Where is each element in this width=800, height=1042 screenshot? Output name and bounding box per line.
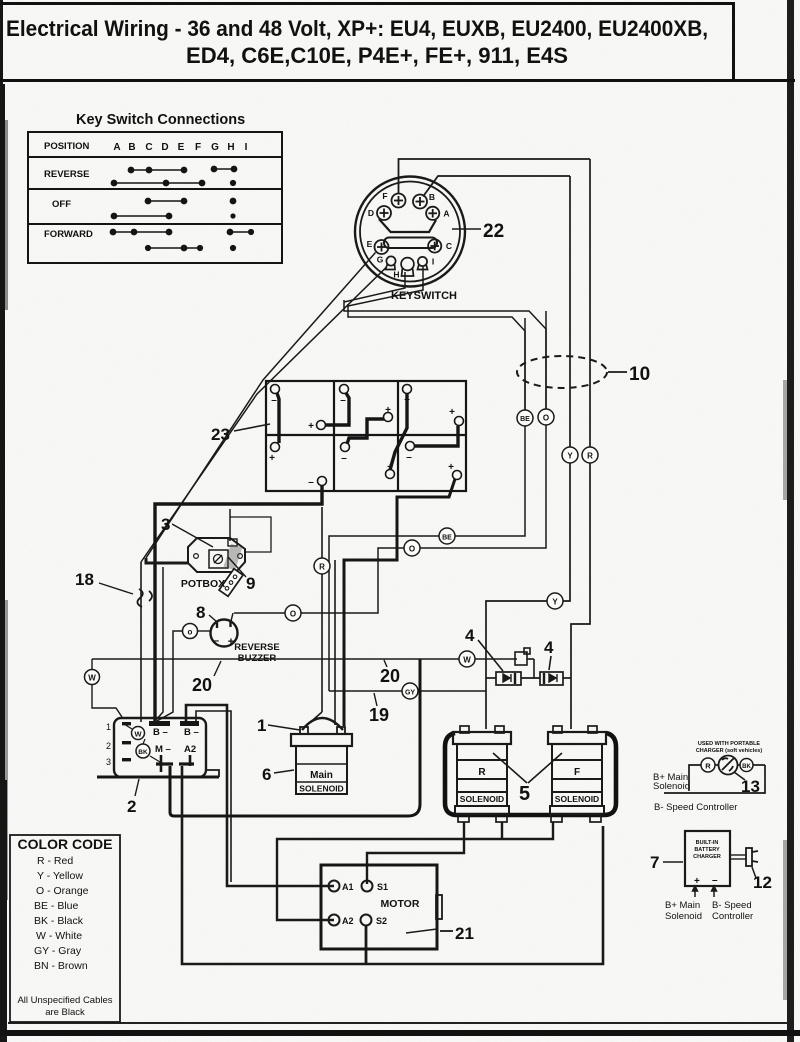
svg-text:C: C: [446, 241, 452, 251]
svg-text:B- Speed: B- Speed: [712, 900, 752, 911]
svg-text:BUILT-IN: BUILT-IN: [696, 840, 719, 846]
svg-text:I: I: [245, 142, 248, 153]
svg-text:A: A: [113, 142, 120, 153]
svg-text:POTBOX: POTBOX: [181, 578, 225, 590]
svg-text:A1: A1: [342, 882, 354, 892]
svg-text:5: 5: [519, 783, 530, 805]
svg-text:CHARGER (soft vehicles): CHARGER (soft vehicles): [696, 748, 762, 754]
svg-text:POSITION: POSITION: [44, 141, 90, 152]
svg-text:–: –: [308, 477, 314, 488]
svg-text:C: C: [145, 142, 152, 153]
svg-text:USED WITH PORTABLE: USED WITH PORTABLE: [698, 741, 761, 747]
svg-text:2: 2: [127, 797, 136, 816]
svg-text:A2: A2: [342, 916, 354, 926]
svg-text:BK: BK: [742, 764, 751, 770]
svg-text:B- Speed Controller: B- Speed Controller: [654, 802, 737, 813]
svg-text:+: +: [385, 405, 391, 416]
svg-text:R: R: [319, 563, 325, 572]
svg-text:O: O: [290, 610, 296, 619]
svg-text:7: 7: [650, 853, 659, 872]
svg-text:are Black: are Black: [45, 1007, 85, 1018]
svg-text:SOLENOID: SOLENOID: [460, 794, 504, 804]
svg-text:F: F: [382, 191, 387, 201]
svg-text:+: +: [269, 453, 275, 464]
svg-text:MOTOR: MOTOR: [381, 898, 420, 910]
svg-text:REVERSE: REVERSE: [44, 169, 89, 180]
svg-text:B –: B –: [184, 727, 199, 738]
svg-text:A2: A2: [184, 744, 196, 755]
svg-text:O: O: [409, 545, 415, 554]
svg-text:Y: Y: [567, 452, 573, 461]
svg-text:R: R: [478, 767, 486, 778]
svg-text:D: D: [368, 208, 374, 218]
svg-text:13: 13: [741, 777, 760, 796]
svg-text:R - Red: R - Red: [37, 855, 73, 867]
svg-text:+: +: [449, 407, 455, 418]
svg-text:O - Orange: O - Orange: [36, 885, 89, 897]
svg-text:REVERSE: REVERSE: [234, 642, 279, 653]
svg-text:O: O: [543, 414, 549, 423]
svg-text:All Unspecified Cables: All Unspecified Cables: [17, 995, 112, 1006]
svg-text:W: W: [134, 730, 142, 739]
svg-text:Key Switch Connections: Key Switch Connections: [76, 112, 245, 128]
svg-text:10: 10: [629, 364, 650, 385]
svg-text:Y: Y: [552, 598, 558, 607]
svg-text:H: H: [227, 142, 234, 153]
svg-text:ED4, C6E,C10E, P4E+, FE+, 911,: ED4, C6E,C10E, P4E+, FE+, 911, E4S: [186, 43, 568, 68]
svg-text:1: 1: [257, 716, 266, 735]
svg-text:R: R: [587, 452, 593, 461]
svg-text:GY: GY: [405, 690, 415, 697]
svg-text:B –: B –: [153, 727, 168, 738]
svg-text:COLOR CODE: COLOR CODE: [18, 836, 113, 852]
svg-text:Solenoid: Solenoid: [653, 781, 690, 792]
svg-text:OFF: OFF: [52, 199, 71, 210]
svg-text:23: 23: [211, 425, 230, 444]
svg-text:BATTERY: BATTERY: [694, 847, 720, 853]
svg-text:B: B: [128, 142, 135, 153]
svg-text:–: –: [340, 395, 346, 406]
svg-text:o: o: [188, 628, 193, 637]
svg-text:I: I: [432, 257, 434, 267]
svg-text:9: 9: [246, 574, 255, 593]
svg-text:12: 12: [753, 873, 772, 892]
svg-text:BE: BE: [442, 535, 452, 542]
svg-text:F: F: [574, 767, 580, 778]
svg-text:+: +: [448, 462, 454, 473]
svg-text:19: 19: [369, 705, 389, 725]
svg-text:KEYSWITCH: KEYSWITCH: [391, 290, 457, 302]
svg-text:–: –: [406, 452, 412, 463]
svg-text:Main: Main: [310, 770, 333, 781]
svg-text:M –: M –: [155, 744, 171, 755]
svg-text:–: –: [341, 453, 347, 464]
svg-text:B+ Main: B+ Main: [665, 900, 700, 911]
svg-text:F: F: [195, 142, 201, 153]
svg-text:2: 2: [106, 741, 111, 751]
svg-text:–: –: [712, 875, 718, 886]
svg-text:Y - Yellow: Y - Yellow: [37, 870, 83, 882]
svg-text:Controller: Controller: [712, 911, 753, 922]
svg-text:BE - Blue: BE - Blue: [34, 900, 79, 912]
svg-text:B: B: [429, 192, 435, 202]
svg-text:+: +: [228, 636, 234, 648]
svg-text:BK: BK: [138, 749, 148, 756]
svg-text:SOLENOID: SOLENOID: [555, 794, 599, 804]
svg-text:G: G: [377, 255, 384, 265]
svg-text:+: +: [308, 421, 314, 432]
svg-text:20: 20: [380, 666, 400, 686]
svg-text:6: 6: [262, 765, 271, 784]
svg-text:Solenoid: Solenoid: [665, 911, 702, 922]
svg-text:H: H: [393, 270, 399, 280]
svg-text:E: E: [367, 239, 373, 249]
svg-text:S2: S2: [376, 916, 387, 926]
svg-text:W - White: W - White: [36, 930, 82, 942]
svg-text:W: W: [463, 656, 471, 665]
svg-text:18: 18: [75, 570, 94, 589]
svg-text:W: W: [88, 674, 96, 683]
svg-text:BK - Black: BK - Black: [34, 915, 84, 927]
svg-text:R: R: [705, 762, 711, 771]
svg-text:4: 4: [544, 638, 554, 657]
svg-text:–: –: [213, 635, 219, 647]
svg-text:3: 3: [161, 515, 170, 534]
svg-text:BE: BE: [520, 416, 530, 423]
svg-text:E: E: [178, 142, 185, 153]
svg-text:G: G: [211, 142, 219, 153]
svg-text:4: 4: [465, 626, 475, 645]
svg-text:A: A: [443, 209, 449, 219]
svg-text:GY - Gray: GY - Gray: [34, 945, 82, 957]
svg-text:21: 21: [455, 924, 474, 943]
svg-text:–: –: [271, 395, 277, 406]
svg-text:8: 8: [196, 603, 205, 622]
svg-text:FORWARD: FORWARD: [44, 229, 93, 240]
svg-text:CHARGER: CHARGER: [693, 854, 721, 860]
svg-text:D: D: [161, 142, 168, 153]
svg-text:20: 20: [192, 675, 212, 695]
svg-text:BN - Brown: BN - Brown: [34, 960, 88, 972]
svg-text:3: 3: [106, 757, 111, 767]
svg-text:S1: S1: [377, 882, 388, 892]
svg-text:Electrical Wiring - 36 and 48: Electrical Wiring - 36 and 48 Volt, XP+:…: [6, 16, 708, 41]
svg-text:1: 1: [106, 722, 111, 732]
svg-text:22: 22: [483, 221, 504, 242]
svg-text:SOLENOID: SOLENOID: [299, 784, 343, 794]
